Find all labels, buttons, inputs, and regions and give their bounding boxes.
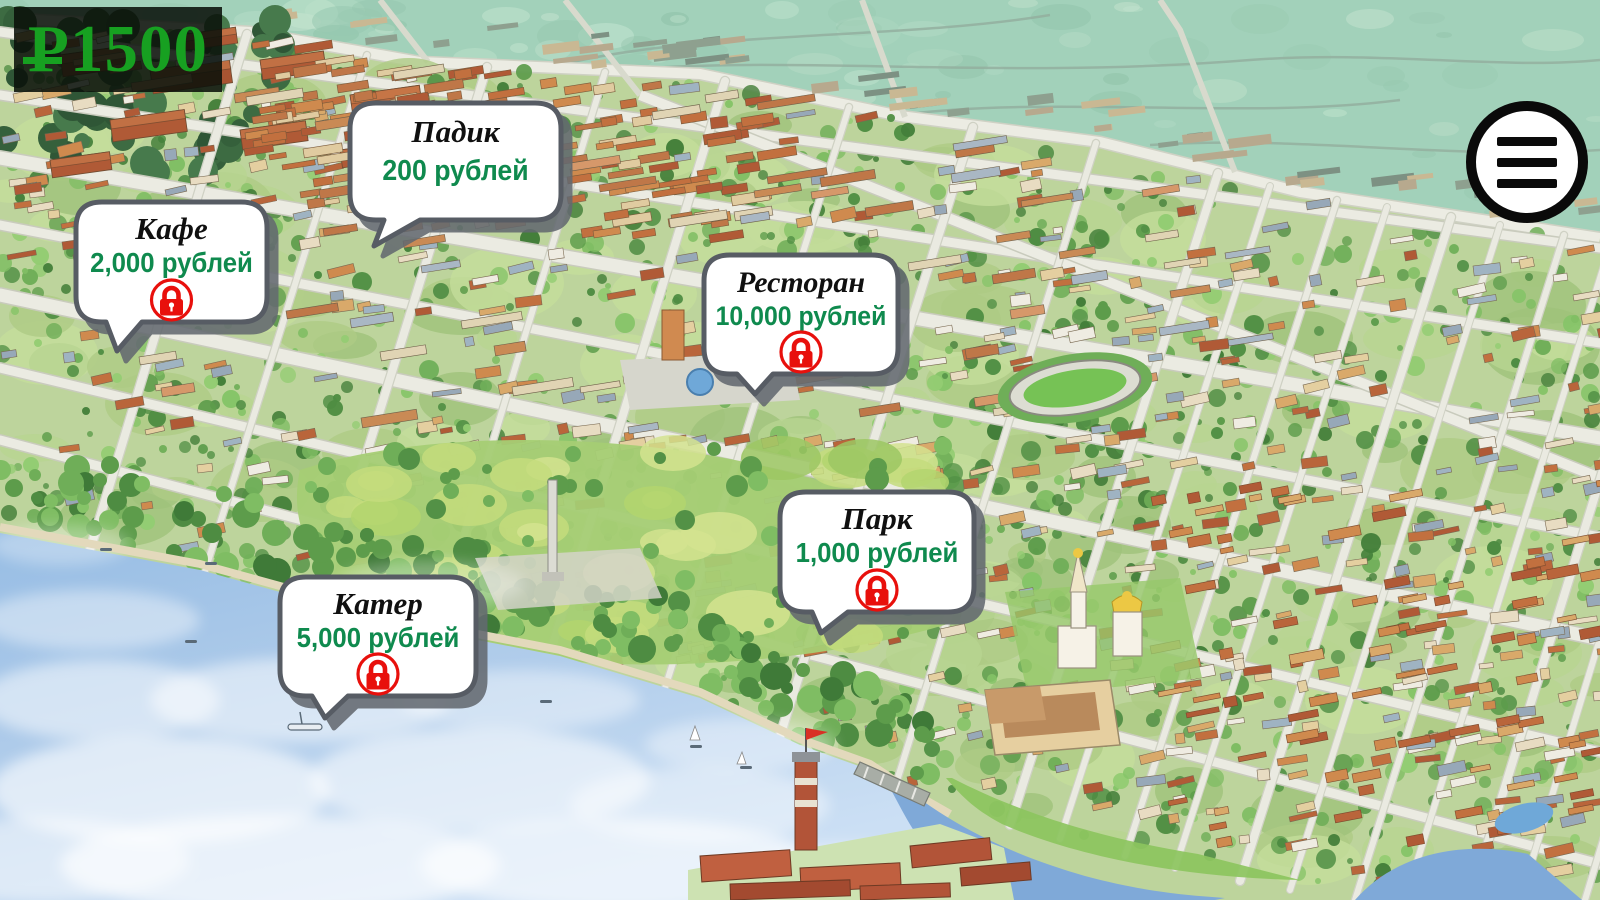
- svg-text:2,000 рублей: 2,000 рублей: [90, 247, 253, 278]
- svg-text:Кафе: Кафе: [134, 211, 208, 246]
- svg-text:10,000 рублей: 10,000 рублей: [716, 302, 887, 331]
- svg-text:1,000 рублей: 1,000 рублей: [796, 537, 959, 568]
- svg-text:200 рублей: 200 рублей: [382, 154, 528, 186]
- svg-text:Падик: Падик: [411, 114, 501, 149]
- svg-text:Катер: Катер: [332, 586, 423, 621]
- svg-text:Ресторан: Ресторан: [736, 266, 865, 299]
- svg-text:Парк: Парк: [841, 501, 914, 536]
- svg-text:5,000 рублей: 5,000 рублей: [297, 622, 460, 653]
